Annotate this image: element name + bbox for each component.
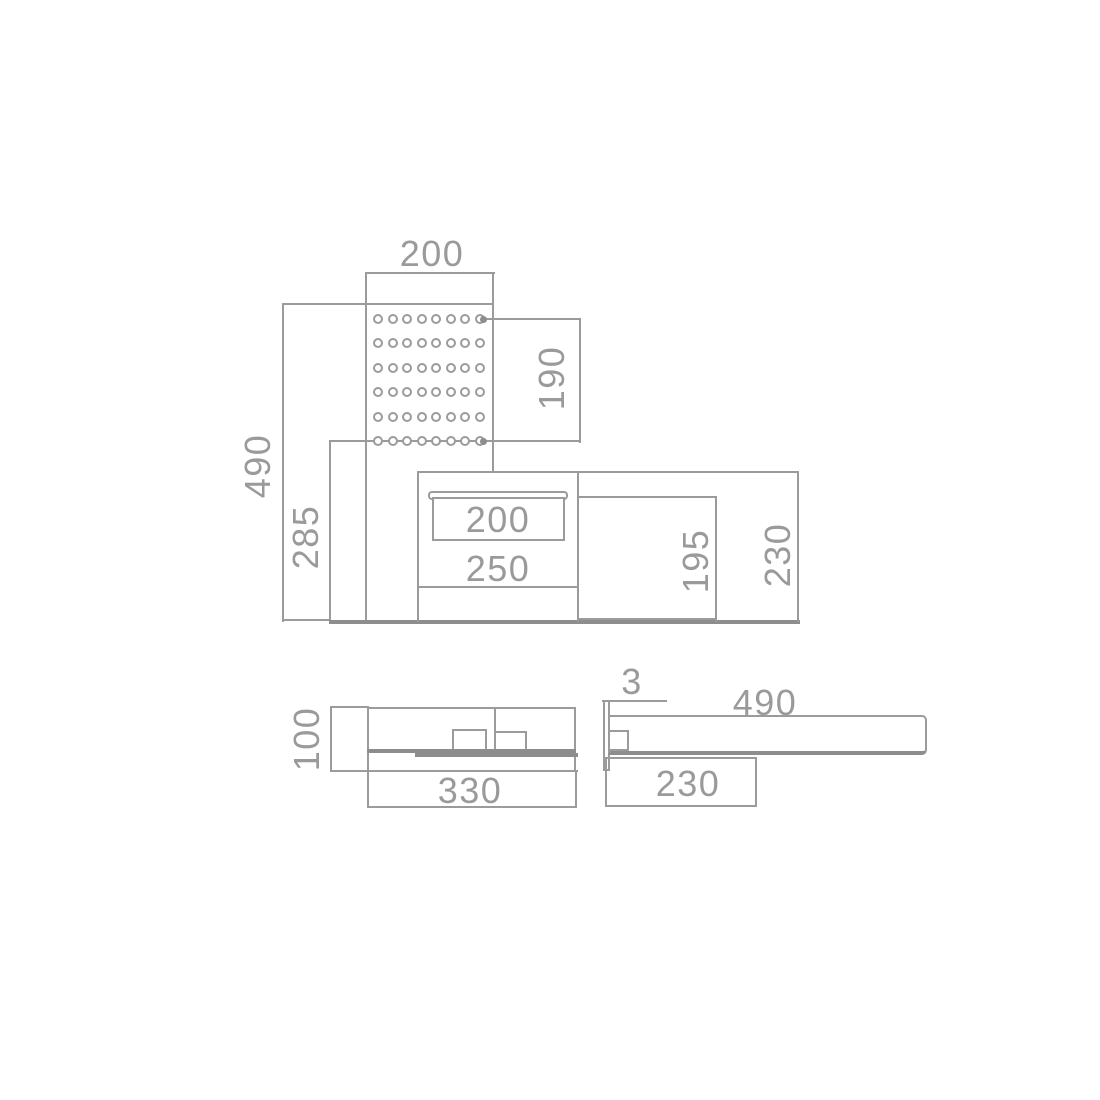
dim-label-total-height: 490 (238, 406, 278, 526)
front-panel-band-line (282, 303, 494, 305)
cabinet-partition (577, 471, 579, 622)
perforation-hole (402, 387, 412, 397)
perforation-hole (402, 338, 412, 348)
perforation-hole (402, 314, 412, 324)
perforation-hole (431, 412, 441, 422)
inner-compartment-top-edge (577, 496, 717, 498)
dim-330-right-edge (575, 770, 577, 808)
front-ground-line (329, 620, 800, 624)
perforation-hole (460, 387, 470, 397)
perforation-hole (460, 363, 470, 373)
dim-label-perforation-height: 190 (532, 318, 572, 438)
perforation-hole (446, 387, 456, 397)
perforation-hole (373, 338, 383, 348)
perforation-hole (373, 363, 383, 373)
perforation-hole (388, 436, 398, 446)
perforation-hole (373, 412, 383, 422)
dim-label-side-depth: 330 (410, 771, 530, 811)
perforation-hole (475, 387, 485, 397)
perforation-hole (417, 363, 427, 373)
dim-190-leader-dot-bottom (480, 438, 487, 445)
perforation-hole (431, 387, 441, 397)
dim-label-panel-width: 200 (372, 234, 492, 274)
perforation-hole (402, 412, 412, 422)
perforation-hole (446, 338, 456, 348)
side-tabletop-step (415, 753, 578, 757)
dim-330-left-edge (367, 770, 369, 808)
perforation-hole (402, 436, 412, 446)
perforation-hole (431, 363, 441, 373)
perforation-hole (446, 436, 456, 446)
perforation-hole (460, 412, 470, 422)
perforation-hole (388, 363, 398, 373)
perforation-hole (446, 363, 456, 373)
cabinet-top-edge (417, 471, 799, 473)
perforation-hole (417, 412, 427, 422)
dim-label-depth: 230 (758, 495, 798, 615)
perforation-hole (431, 314, 441, 324)
side-unit-right-edge (574, 707, 576, 772)
dim-label-drawer-width: 200 (438, 500, 558, 540)
cabinet-left-edge (417, 471, 419, 622)
perforation-hole (460, 436, 470, 446)
dim-100-top-tick (330, 706, 369, 708)
shelf-bracket (608, 730, 629, 751)
perforation-hole (373, 387, 383, 397)
dim-label-inner-depth: 195 (676, 501, 716, 621)
technical-drawing: 200 490 285 190 200 250 195 230 100 330 … (0, 0, 1100, 1100)
perforation-hole (431, 338, 441, 348)
perforation-hole (475, 412, 485, 422)
side-unit-left-edge (367, 706, 369, 772)
perforation-hole (373, 314, 383, 324)
perforation-hole (388, 412, 398, 422)
dim-label-shelf-length: 490 (705, 683, 825, 723)
perforation-hole (388, 338, 398, 348)
perforation-hole (460, 314, 470, 324)
perforation-hole (446, 314, 456, 324)
dim-label-compartment-width: 250 (438, 549, 558, 589)
side-unit-top-edge (367, 707, 576, 709)
dim-490-extension-line (282, 303, 284, 622)
dim-label-base-depth: 230 (628, 764, 748, 804)
perforation-hole (388, 387, 398, 397)
perforation-hole (373, 436, 383, 446)
dim-label-side-height: 100 (287, 679, 327, 799)
perforation-hole (460, 338, 470, 348)
perforation-hole (446, 412, 456, 422)
dim-490-bottom-tick (282, 619, 331, 621)
dim-label-lower-height: 285 (286, 477, 326, 597)
dim-285-extension-line (329, 440, 331, 622)
perforation-hole (417, 338, 427, 348)
perforation-hole (417, 436, 427, 446)
dim-190-extension-line (579, 318, 581, 443)
perforation-hole (402, 363, 412, 373)
perforation-hole (475, 338, 485, 348)
dim-100-extension-line (330, 706, 332, 772)
perforation-hole (475, 363, 485, 373)
perforation-hole (417, 314, 427, 324)
front-panel-left-edge (365, 272, 367, 622)
perforation-hole (388, 314, 398, 324)
perforation-hole (417, 387, 427, 397)
perforation-hole (431, 436, 441, 446)
dim-label-panel-thickness: 3 (572, 662, 692, 702)
dim-190-leader-dot-top (480, 316, 487, 323)
